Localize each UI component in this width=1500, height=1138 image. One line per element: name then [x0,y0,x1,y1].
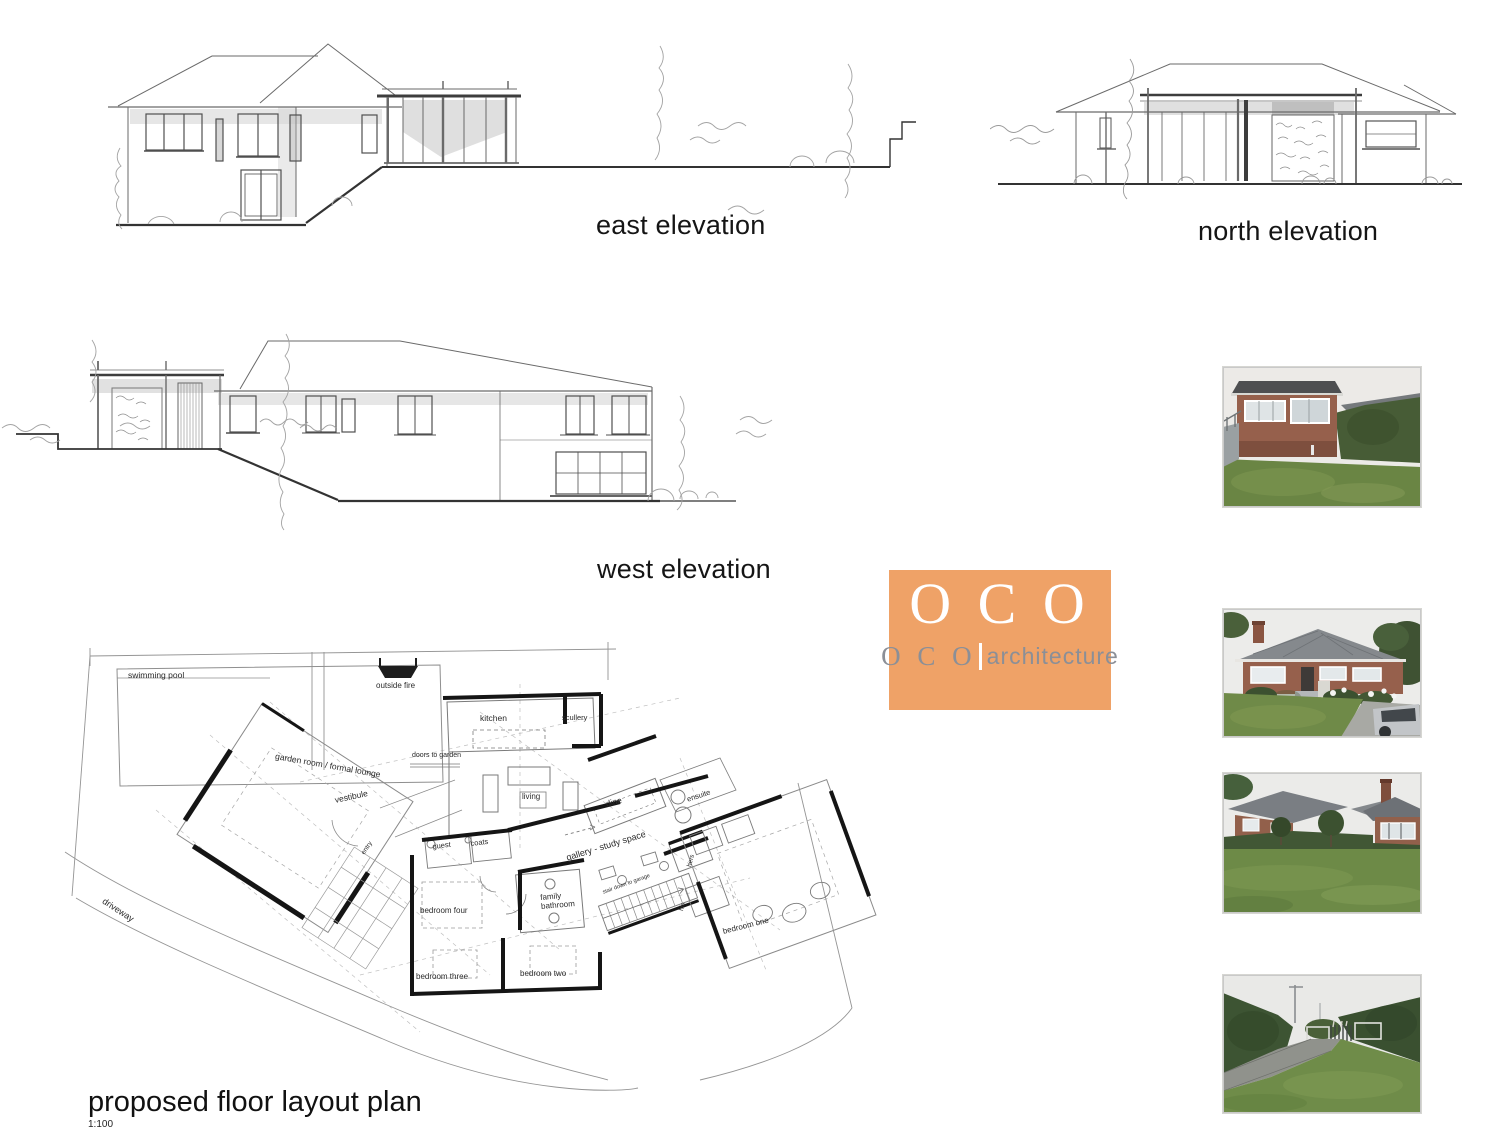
plan-title: proposed floor layout plan [88,1086,422,1119]
plan-label-swimming-pool: swimming pool [128,671,184,681]
east-elevation-drawing [100,40,940,240]
photo-rear-garden [1222,366,1422,508]
floor-plan: swimming pool outside fire kitchen scull… [60,640,900,1100]
oco-architecture-logo: O C O O C O architecture [889,570,1111,710]
outside-fire-symbol [378,658,418,678]
north-planting [990,59,1452,199]
bedroom-one-wing [680,780,876,969]
his-hers-closets [669,831,730,917]
plan-label-bedroom-three: bedroom three [416,973,468,982]
west-house [2,334,772,530]
north-house [990,59,1462,199]
photo-garden-two-houses [1222,772,1422,914]
floor-plan-drawing [60,640,900,1100]
plan-label-doors-to-garden: doors to garden [412,752,461,760]
west-windows [226,396,652,496]
presentation-sheet: east elevation [0,0,1500,1138]
plan-scale: 1:100 [88,1119,113,1130]
north-elevation-label: north elevation [1198,216,1378,247]
stone-texture [1276,121,1329,175]
west-elevation-drawing [0,330,900,535]
site-boundary [65,642,852,1090]
stone-texture-west [116,396,150,440]
plan-label-outside-fire: outside fire [376,682,415,691]
photo-front-of-house [1222,608,1422,738]
east-windows [144,114,377,220]
west-ground [16,434,736,501]
east-house [108,44,916,229]
east-elevation-label: east elevation [596,210,765,241]
logo-subline: O C O architecture [881,641,1119,672]
logo-initials-large: O C O [909,574,1090,635]
plan-label-bedroom-four: bedroom four [420,907,468,916]
plan-label-kitchen: kitchen [480,714,507,724]
garden-room-outline [176,703,414,934]
plan-label-bedroom-two: bedroom two [520,970,566,979]
logo-divider-bar [979,643,982,670]
west-elevation-label: west elevation [597,554,771,585]
north-elevation-drawing [990,55,1470,215]
logo-word-architecture: architecture [987,643,1119,670]
plan-label-scullery: scullery [562,714,587,722]
plan-label-living: living [522,793,540,802]
photo-path-to-gate [1222,974,1422,1114]
terrace-grid [302,847,418,969]
